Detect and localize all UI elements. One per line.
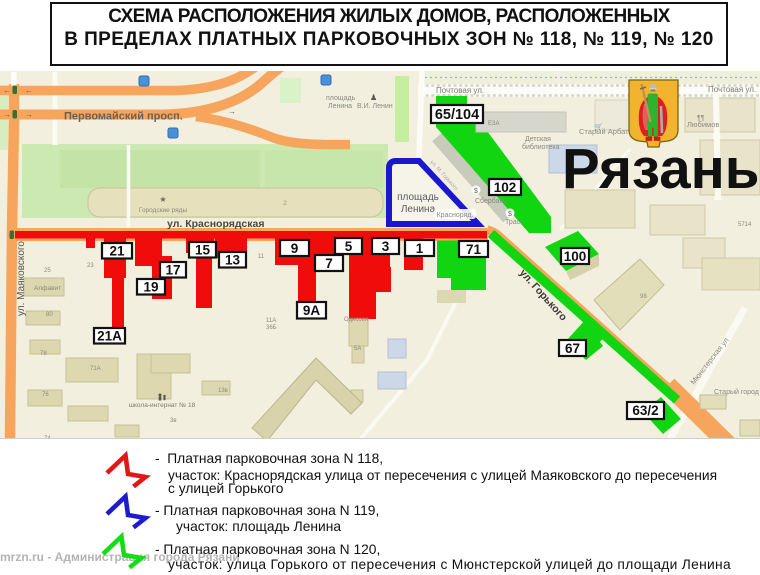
svg-text:11: 11 <box>258 254 265 260</box>
svg-text:21А: 21А <box>97 329 122 344</box>
svg-text:Ленина: Ленина <box>401 204 436 215</box>
svg-text:$: $ <box>508 211 512 218</box>
svg-text:ул. Краснорядская: ул. Краснорядская <box>167 218 264 230</box>
svg-text:$: $ <box>474 188 478 195</box>
svg-text:71: 71 <box>466 242 482 257</box>
svg-text:5А: 5А <box>354 346 361 352</box>
svg-text:←: ← <box>25 86 33 95</box>
svg-text:школа-интернат № 18: школа-интернат № 18 <box>129 402 196 409</box>
svg-text:♟: ♟ <box>370 93 377 102</box>
svg-text:23: 23 <box>87 263 94 269</box>
svg-text:5: 5 <box>345 239 353 254</box>
svg-text:1: 1 <box>416 241 424 256</box>
svg-text:Алфавит: Алфавит <box>34 285 61 292</box>
svg-text:Траст: Траст <box>505 219 524 226</box>
svg-text:Любимов: Любимов <box>687 120 719 129</box>
svg-text:3в: 3в <box>170 418 177 424</box>
svg-text:Первомайский просп.: Первомайский просп. <box>64 111 183 123</box>
svg-text:21: 21 <box>109 244 125 259</box>
svg-text:5714: 5714 <box>738 222 752 228</box>
svg-text:Сбербанк: Сбербанк <box>475 197 507 205</box>
svg-text:2: 2 <box>283 200 287 207</box>
svg-text:98: 98 <box>640 294 647 300</box>
svg-text:★: ★ <box>159 195 166 204</box>
svg-text:76: 76 <box>42 392 49 398</box>
svg-text:→: → <box>25 110 33 119</box>
svg-text:102: 102 <box>494 180 517 195</box>
svg-text:площадь: площадь <box>326 95 356 102</box>
svg-text:71А: 71А <box>90 366 101 372</box>
svg-text:11А: 11А <box>266 318 276 324</box>
svg-text:13: 13 <box>225 253 241 268</box>
svg-text:9А: 9А <box>303 303 321 318</box>
svg-text:Городские ряды: Городские ряды <box>139 207 188 214</box>
svg-text:Ленина: Ленина <box>328 103 352 110</box>
svg-text:Старый Арбат: Старый Арбат <box>579 127 629 136</box>
svg-text:Старый город: Старый город <box>714 388 759 396</box>
svg-text:библиотека: библиотека <box>522 143 560 151</box>
svg-text:17: 17 <box>165 263 180 278</box>
svg-text:63/2: 63/2 <box>632 403 658 418</box>
svg-text:80: 80 <box>46 312 53 318</box>
svg-text:36Б: 36Б <box>266 325 277 331</box>
svg-text:Красноряд.: Красноряд. <box>437 212 474 219</box>
svg-text:В.И. Ленин: В.И. Ленин <box>357 103 393 110</box>
svg-text:ул. Маяковского: ул. Маяковского <box>16 241 27 316</box>
svg-text:67: 67 <box>565 341 580 356</box>
svg-text:→: → <box>3 110 11 119</box>
svg-text:→: → <box>228 107 236 116</box>
svg-text:9: 9 <box>291 241 299 256</box>
svg-text:78: 78 <box>40 351 47 357</box>
svg-text:Почтовая ул.: Почтовая ул. <box>436 86 484 95</box>
svg-text:Рязань: Рязань <box>562 137 760 200</box>
svg-text:25: 25 <box>44 268 51 274</box>
svg-text:15: 15 <box>195 243 211 258</box>
svg-text:3: 3 <box>382 239 390 254</box>
svg-text:Одиссея: Одиссея <box>344 317 368 323</box>
svg-text:ЕЗА: ЕЗА <box>488 121 500 127</box>
svg-text:100: 100 <box>564 249 587 264</box>
svg-text:7: 7 <box>325 256 333 271</box>
svg-text:65/104: 65/104 <box>435 107 479 123</box>
svg-text:Детская: Детская <box>525 136 551 143</box>
svg-text:13в: 13в <box>218 388 228 394</box>
svg-text:←: ← <box>3 86 11 95</box>
svg-text:19: 19 <box>143 280 158 295</box>
svg-text:площадь: площадь <box>397 192 439 203</box>
